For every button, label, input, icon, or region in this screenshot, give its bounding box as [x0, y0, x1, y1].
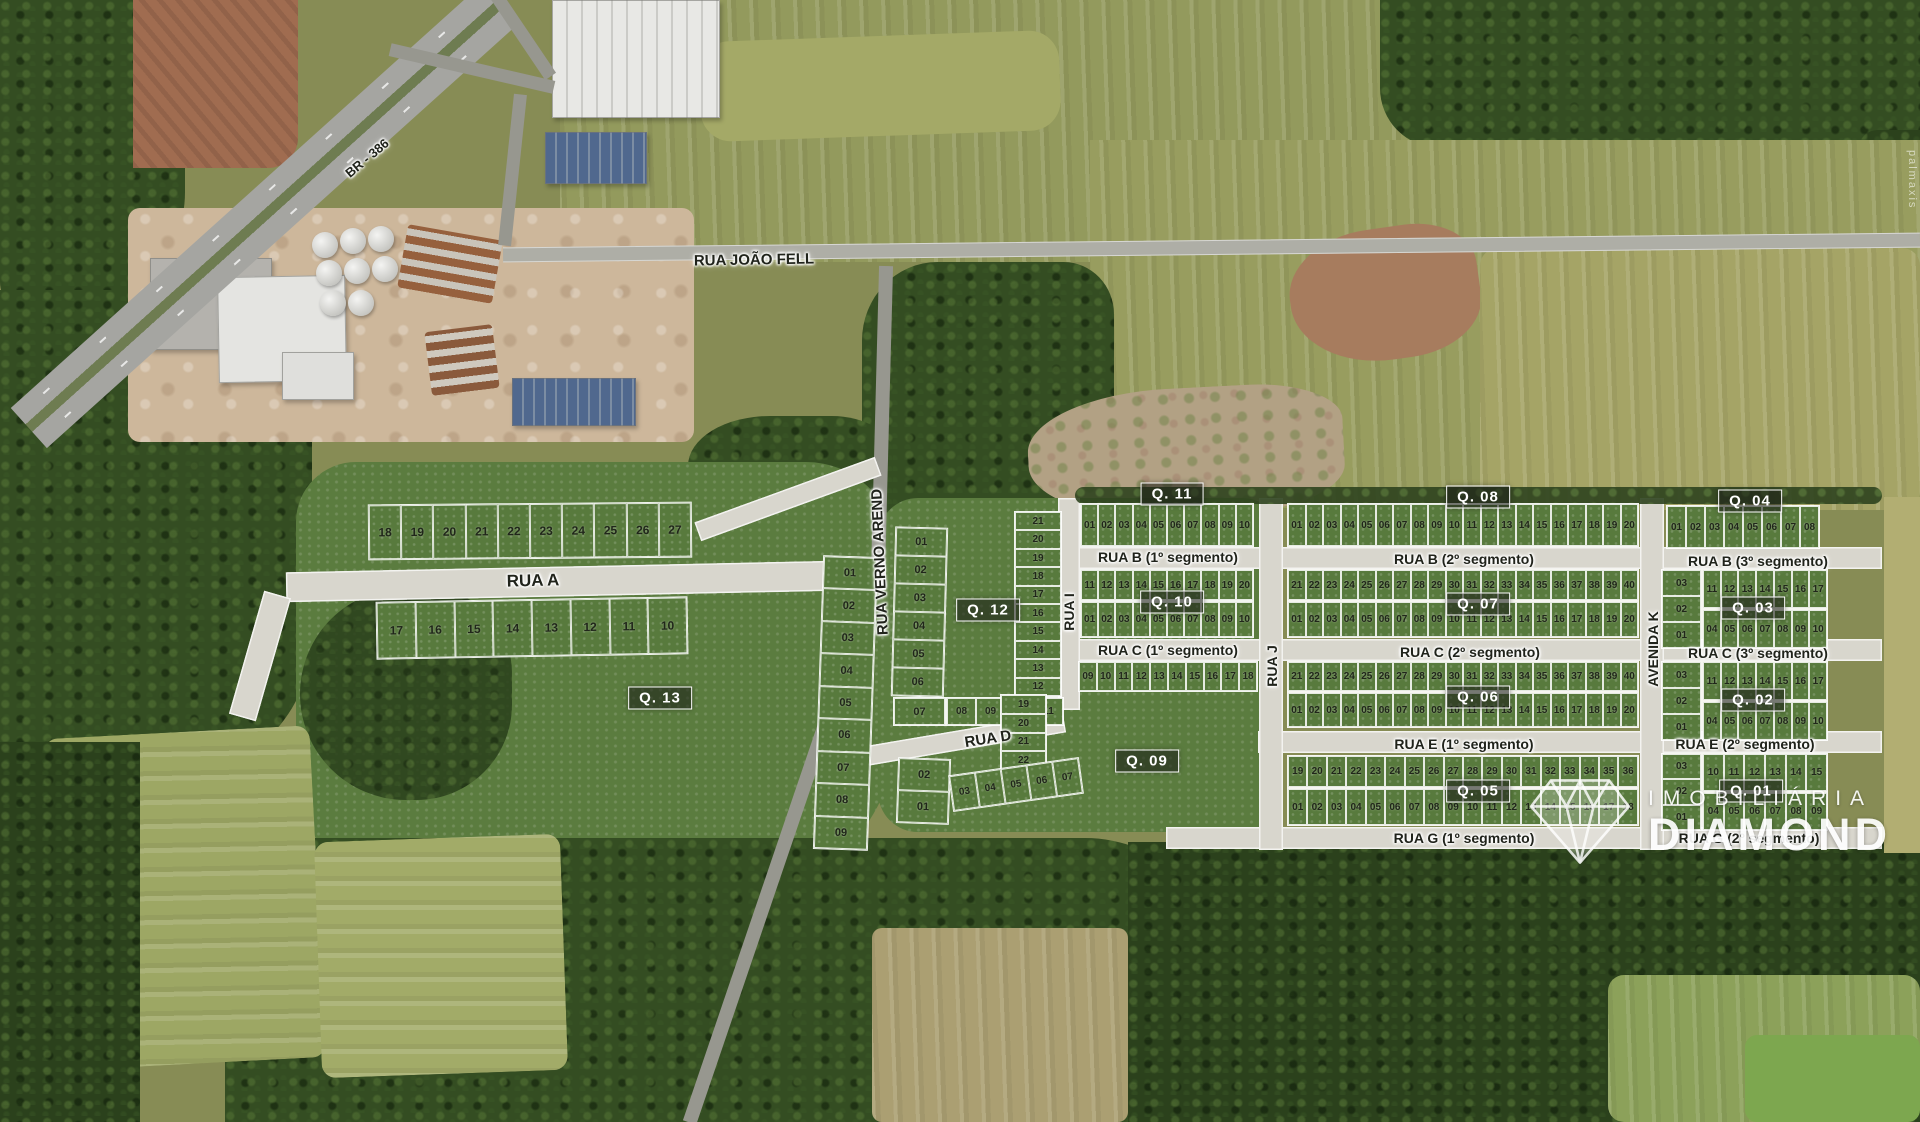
lot-q11-row-09[interactable]: 09: [1219, 504, 1236, 546]
lot-q05-top-22[interactable]: 22: [1346, 756, 1365, 787]
lot-number: 01: [1291, 705, 1302, 716]
lot-q12-east-15[interactable]: 15: [1015, 622, 1061, 640]
lot-number: 15: [1189, 671, 1200, 682]
lot-q12-west-01[interactable]: 01: [895, 527, 947, 556]
lot-q07-bot-09[interactable]: 09: [1428, 602, 1446, 637]
lot-q13-east-09[interactable]: 09: [814, 816, 868, 850]
lot-q07-bot-15[interactable]: 15: [1533, 602, 1551, 637]
lot-q13-mid-11[interactable]: 11: [609, 598, 649, 655]
lot-q06-top-38[interactable]: 38: [1586, 662, 1604, 691]
lot-q05-top-24[interactable]: 24: [1385, 756, 1404, 787]
lot-q10-top-19[interactable]: 19: [1219, 570, 1236, 600]
lot-number: 06: [1035, 775, 1048, 787]
lot-q04-row-02[interactable]: 02: [1686, 506, 1705, 548]
lot-q06-top-27[interactable]: 27: [1393, 662, 1411, 691]
lot-q07-bot-14[interactable]: 14: [1516, 602, 1534, 637]
lot-q06-top-36[interactable]: 36: [1551, 662, 1569, 691]
lot-q07-top-26[interactable]: 26: [1376, 570, 1394, 600]
lot-q06-top-40[interactable]: 40: [1621, 662, 1639, 691]
lot-q13-mid-15[interactable]: 15: [454, 601, 494, 658]
lot-q06-top-22[interactable]: 22: [1306, 662, 1324, 691]
lot-number: 16: [1032, 608, 1043, 619]
lot-q13-east-07[interactable]: 07: [816, 751, 870, 785]
lot-number: 20: [1018, 718, 1029, 729]
terrain-field-red-top-left: [133, 0, 298, 168]
lot-q05-bot-03[interactable]: 03: [1327, 789, 1346, 825]
quadra-label-q13[interactable]: Q. 13: [628, 687, 692, 710]
lot-q13-mid-14[interactable]: 14: [493, 600, 533, 657]
lot-q06-bot-04[interactable]: 04: [1341, 693, 1359, 727]
lot-number: 19: [1606, 520, 1617, 531]
lot-q07-top-22[interactable]: 22: [1306, 570, 1324, 600]
lot-q05-bot-08[interactable]: 08: [1424, 789, 1443, 825]
street-label-rua-g-1: RUA G (1º segmento): [1394, 830, 1535, 846]
lot-q06-top-21[interactable]: 21: [1288, 662, 1306, 691]
lot-q09-top-14[interactable]: 14: [1168, 662, 1186, 691]
lot-q07-top-36[interactable]: 36: [1551, 570, 1569, 600]
lot-number: 12: [1136, 671, 1147, 682]
lot-q13-east-01[interactable]: 01: [823, 556, 877, 590]
lot-number: 08: [1777, 716, 1788, 727]
lot-q06-top-28[interactable]: 28: [1411, 662, 1429, 691]
lot-q07-bot-04[interactable]: 04: [1341, 602, 1359, 637]
lot-q07-bot-08[interactable]: 08: [1411, 602, 1429, 637]
lot-q13-mid-17[interactable]: 17: [377, 602, 417, 659]
lot-q06-bot-06[interactable]: 06: [1376, 693, 1394, 727]
lot-q03-bot-09[interactable]: 09: [1792, 610, 1810, 648]
lot-q07-top-38[interactable]: 38: [1586, 570, 1604, 600]
lot-q10-top-13[interactable]: 13: [1115, 570, 1132, 600]
lot-number: 28: [1414, 580, 1425, 591]
lot-q02-top-17[interactable]: 17: [1809, 662, 1827, 700]
lot-q09-top-17[interactable]: 17: [1221, 662, 1239, 691]
lot-q08-row-12[interactable]: 12: [1481, 504, 1499, 546]
lot-q10-bot-08[interactable]: 08: [1201, 602, 1218, 637]
lot-q06-bot-03[interactable]: 03: [1323, 693, 1341, 727]
lot-q11-row-06[interactable]: 06: [1167, 504, 1184, 546]
lot-q04-row-08[interactable]: 08: [1800, 506, 1819, 548]
quadra-label-q03[interactable]: Q. 03: [1721, 597, 1785, 620]
lot-number: 12: [1101, 580, 1112, 591]
lot-number: 10: [1813, 624, 1824, 635]
lot-q12-east-21[interactable]: 21: [1015, 512, 1061, 530]
lot-q08-row-11[interactable]: 11: [1463, 504, 1481, 546]
lot-q12-east-18[interactable]: 18: [1015, 567, 1061, 585]
lot-q05-top-21[interactable]: 21: [1327, 756, 1346, 787]
lot-q06-bot-05[interactable]: 05: [1358, 693, 1376, 727]
lot-q10-bot-03[interactable]: 03: [1115, 602, 1132, 637]
lot-q07-top-34[interactable]: 34: [1516, 570, 1534, 600]
lot-block-q09-west: 0201: [896, 757, 951, 825]
lot-q05-bot-02[interactable]: 02: [1307, 789, 1326, 825]
lot-q12-east-14[interactable]: 14: [1015, 641, 1061, 659]
street-label-rua-b-2: RUA B (2º segmento): [1394, 551, 1534, 567]
lot-number: 07: [1759, 716, 1770, 727]
lot-number: 18: [1589, 614, 1600, 625]
lot-q13-top-21[interactable]: 21: [465, 504, 498, 558]
lot-q08-row-07[interactable]: 07: [1393, 504, 1411, 546]
lot-q03-top-16[interactable]: 16: [1792, 570, 1810, 608]
lot-q13-east-03[interactable]: 03: [821, 621, 875, 655]
quadra-label-q09[interactable]: Q. 09: [1115, 750, 1179, 773]
lot-q08-row-06[interactable]: 06: [1376, 504, 1394, 546]
lot-number: 05: [1361, 520, 1372, 531]
lot-q10-top-18[interactable]: 18: [1201, 570, 1218, 600]
lot-q05-top-20[interactable]: 20: [1307, 756, 1326, 787]
lot-q08-row-18[interactable]: 18: [1586, 504, 1604, 546]
lot-number: 19: [1606, 705, 1617, 716]
lot-q06-top-25[interactable]: 25: [1358, 662, 1376, 691]
lot-q11-row-04[interactable]: 04: [1133, 504, 1150, 546]
lot-q05-top-19[interactable]: 19: [1288, 756, 1307, 787]
lot-q06-bot-15[interactable]: 15: [1533, 693, 1551, 727]
lot-q06-top-34[interactable]: 34: [1516, 662, 1534, 691]
lot-q05-top-23[interactable]: 23: [1366, 756, 1385, 787]
lot-q13-east-04[interactable]: 04: [820, 653, 874, 687]
lot-q09-south-07[interactable]: 07: [1052, 758, 1083, 796]
lot-q11-row-05[interactable]: 05: [1150, 504, 1167, 546]
lot-q06-bot-07[interactable]: 07: [1393, 693, 1411, 727]
lot-q06-bot-02[interactable]: 02: [1306, 693, 1324, 727]
lot-q02-left-03[interactable]: 03: [1662, 662, 1701, 688]
lot-number: 02: [1101, 614, 1112, 625]
lot-number: 09: [1795, 716, 1806, 727]
lot-q08-row-19[interactable]: 19: [1603, 504, 1621, 546]
lot-q13-top-25[interactable]: 25: [594, 503, 627, 557]
lot-number: 37: [1571, 580, 1582, 591]
lot-number: 16: [1207, 671, 1218, 682]
lot-q13-mid-13[interactable]: 13: [532, 599, 572, 656]
lot-number: 25: [1361, 671, 1372, 682]
lot-q08-row-02[interactable]: 02: [1306, 504, 1324, 546]
lot-q03-bot-10[interactable]: 10: [1809, 610, 1827, 648]
lot-number: 16: [1795, 584, 1806, 595]
lot-q02-bot-10[interactable]: 10: [1809, 702, 1827, 740]
lot-number: 20: [1239, 580, 1250, 591]
street-label-rua-e-1: RUA E (1º segmento): [1394, 736, 1533, 752]
lot-q10-bot-01[interactable]: 01: [1081, 602, 1098, 637]
lot-q06-bot-16[interactable]: 16: [1551, 693, 1569, 727]
lot-q10-bot-02[interactable]: 02: [1098, 602, 1115, 637]
lot-number: 08: [836, 794, 849, 806]
lot-q07-bot-06[interactable]: 06: [1376, 602, 1394, 637]
lot-q05-bot-01[interactable]: 01: [1288, 789, 1307, 825]
lot-q10-top-20[interactable]: 20: [1236, 570, 1253, 600]
quadra-label-q05[interactable]: Q. 05: [1446, 780, 1510, 803]
lot-q05-bot-06[interactable]: 06: [1385, 789, 1404, 825]
lot-q06-bot-20[interactable]: 20: [1621, 693, 1639, 727]
lot-number: 16: [1554, 705, 1565, 716]
lot-q09-top-16[interactable]: 16: [1204, 662, 1222, 691]
lot-q05-bot-07[interactable]: 07: [1405, 789, 1424, 825]
lot-number: 09: [1448, 802, 1459, 813]
lot-q07-top-40[interactable]: 40: [1621, 570, 1639, 600]
lot-q08-row-03[interactable]: 03: [1323, 504, 1341, 546]
lot-q07-bot-17[interactable]: 17: [1568, 602, 1586, 637]
lot-q03-left-02[interactable]: 02: [1662, 596, 1701, 622]
lot-number: 18: [1243, 671, 1254, 682]
lot-q12-west-04[interactable]: 04: [893, 611, 945, 640]
lot-q05-bot-04[interactable]: 04: [1346, 789, 1365, 825]
lot-number: 10: [1467, 802, 1478, 813]
lot-q07-top-27[interactable]: 27: [1393, 570, 1411, 600]
lot-q06-top-23[interactable]: 23: [1323, 662, 1341, 691]
lot-q02-top-16[interactable]: 16: [1792, 662, 1810, 700]
lot-q06-top-26[interactable]: 26: [1376, 662, 1394, 691]
lot-q10-bot-09[interactable]: 09: [1219, 602, 1236, 637]
lot-q06-bot-17[interactable]: 17: [1568, 693, 1586, 727]
lot-number: 20: [1312, 766, 1323, 777]
lot-number: 07: [1759, 624, 1770, 635]
lot-number: 04: [1344, 614, 1355, 625]
lot-number: 19: [1222, 580, 1233, 591]
lot-q08-row-05[interactable]: 05: [1358, 504, 1376, 546]
lot-number: 11: [1707, 584, 1718, 595]
lot-q06-top-37[interactable]: 37: [1568, 662, 1586, 691]
lot-number: 31: [1466, 671, 1477, 682]
lot-q07-bot-07[interactable]: 07: [1393, 602, 1411, 637]
lot-number: 15: [1153, 580, 1164, 591]
lot-q13-mid-10[interactable]: 10: [648, 597, 688, 654]
lot-q03-top-11[interactable]: 11: [1703, 570, 1721, 608]
lot-number: 08: [1414, 705, 1425, 716]
lot-q12-east-16[interactable]: 16: [1015, 604, 1061, 622]
lot-number: 20: [443, 525, 456, 539]
lot-number: 03: [1118, 614, 1129, 625]
lot-q08-row-20[interactable]: 20: [1621, 504, 1639, 546]
lot-block-q12-east: 21201918171615141312: [1014, 511, 1062, 697]
lot-q08-row-04[interactable]: 04: [1341, 504, 1359, 546]
lot-number: 33: [1501, 580, 1512, 591]
lot-q12-west-06[interactable]: 06: [892, 667, 944, 696]
lot-number: 19: [1018, 699, 1029, 710]
quadra-label-q04[interactable]: Q. 04: [1718, 490, 1782, 513]
lot-q12-east-20[interactable]: 20: [1015, 530, 1061, 548]
lot-number: 11: [1707, 676, 1718, 687]
lot-number: 16: [1554, 520, 1565, 531]
lot-q08-row-13[interactable]: 13: [1498, 504, 1516, 546]
lot-q03-left-03[interactable]: 03: [1662, 570, 1701, 596]
quadra-label-q07[interactable]: Q. 07: [1446, 593, 1510, 616]
lot-q07-bot-20[interactable]: 20: [1621, 602, 1639, 637]
lot-number: 27: [1396, 671, 1407, 682]
lot-number: 23: [539, 524, 552, 538]
silo: [320, 290, 346, 316]
lot-q04-row-01[interactable]: 01: [1667, 506, 1686, 548]
lot-q08-row-01[interactable]: 01: [1288, 504, 1306, 546]
lot-number: 19: [411, 525, 424, 539]
lot-q02-bot-09[interactable]: 09: [1792, 702, 1810, 740]
lot-q11-row-03[interactable]: 03: [1115, 504, 1132, 546]
lot-q06-top-29[interactable]: 29: [1428, 662, 1446, 691]
lot-q09-top-15[interactable]: 15: [1186, 662, 1204, 691]
lot-number: 13: [1118, 580, 1129, 591]
lot-q07-bot-01[interactable]: 01: [1288, 602, 1306, 637]
lot-number: 20: [1624, 520, 1635, 531]
lot-q07-top-28[interactable]: 28: [1411, 570, 1429, 600]
lot-q06-bot-08[interactable]: 08: [1411, 693, 1429, 727]
lot-q07-top-29[interactable]: 29: [1428, 570, 1446, 600]
lot-q12-south-08[interactable]: 08: [947, 698, 976, 725]
lot-q13-mid-12[interactable]: 12: [570, 599, 610, 656]
lot-q09-west-02[interactable]: 02: [898, 758, 950, 792]
lot-number: 38: [1589, 671, 1600, 682]
lot-q13-east-08[interactable]: 08: [815, 783, 869, 817]
lot-q11-row-10[interactable]: 10: [1236, 504, 1253, 546]
lot-q11-row-07[interactable]: 07: [1184, 504, 1201, 546]
lot-number: 15: [1536, 705, 1547, 716]
lot-q10-top-12[interactable]: 12: [1098, 570, 1115, 600]
lot-q08-row-15[interactable]: 15: [1533, 504, 1551, 546]
lot-q13-top-22[interactable]: 22: [498, 504, 531, 558]
lot-q07-top-23[interactable]: 23: [1323, 570, 1341, 600]
quadra-label-q08[interactable]: Q. 08: [1446, 486, 1510, 509]
lot-q13-east-02[interactable]: 02: [822, 589, 876, 623]
lot-q11-row-02[interactable]: 02: [1098, 504, 1115, 546]
lot-q08-row-08[interactable]: 08: [1411, 504, 1429, 546]
lot-q05-top-25[interactable]: 25: [1405, 756, 1424, 787]
lot-number: 09: [835, 826, 848, 838]
lot-block-q13-east: 010203040506070809: [813, 555, 878, 851]
lot-number: 14: [1519, 520, 1530, 531]
lot-number: 06: [911, 676, 924, 688]
quadra-label-q11[interactable]: Q. 11: [1141, 483, 1204, 506]
lot-q13-east-05[interactable]: 05: [818, 686, 872, 720]
lot-q03-top-17[interactable]: 17: [1809, 570, 1827, 608]
lot-q02-top-11[interactable]: 11: [1703, 662, 1721, 700]
lot-q07-bot-05[interactable]: 05: [1358, 602, 1376, 637]
lot-q09-top-18[interactable]: 18: [1239, 662, 1257, 691]
lot-q08-row-16[interactable]: 16: [1551, 504, 1569, 546]
lot-q07-top-35[interactable]: 35: [1533, 570, 1551, 600]
street-label-rua-c-3: RUA C (3º segmento): [1688, 645, 1828, 661]
quadra-label-q12[interactable]: Q. 12: [956, 599, 1020, 622]
lot-q04-row-07[interactable]: 07: [1781, 506, 1800, 548]
lot-q07-bot-16[interactable]: 16: [1551, 602, 1569, 637]
lot-q02-left-02[interactable]: 02: [1662, 688, 1701, 714]
lot-q02-bot-04[interactable]: 04: [1703, 702, 1721, 740]
lot-q13-east-06[interactable]: 06: [817, 718, 871, 752]
lot-q12-east-13[interactable]: 13: [1015, 659, 1061, 677]
lot-q13-top-19[interactable]: 19: [401, 505, 434, 559]
lot-q09-top-13[interactable]: 13: [1150, 662, 1168, 691]
lot-number: 09: [1082, 671, 1093, 682]
lot-q06-bot-18[interactable]: 18: [1586, 693, 1604, 727]
lot-q07-bot-02[interactable]: 02: [1306, 602, 1324, 637]
quadra-label-q10[interactable]: Q. 10: [1140, 591, 1204, 614]
lot-number: 25: [1409, 766, 1420, 777]
lot-number: 03: [841, 632, 854, 644]
lot-number: 12: [1484, 614, 1495, 625]
lot-number: 23: [1326, 671, 1337, 682]
lot-q07-bot-19[interactable]: 19: [1603, 602, 1621, 637]
lot-q07-bot-03[interactable]: 03: [1323, 602, 1341, 637]
lot-q07-bot-18[interactable]: 18: [1586, 602, 1604, 637]
lot-q08-row-14[interactable]: 14: [1516, 504, 1534, 546]
lot-number: 37: [1571, 671, 1582, 682]
lot-q09-top-10[interactable]: 10: [1097, 662, 1115, 691]
lot-q09-top-09[interactable]: 09: [1079, 662, 1097, 691]
lot-q08-row-10[interactable]: 10: [1446, 504, 1464, 546]
lot-q08-row-17[interactable]: 17: [1568, 504, 1586, 546]
lot-number: 03: [1326, 614, 1337, 625]
lot-q07-top-39[interactable]: 39: [1603, 570, 1621, 600]
lot-q12-west-03[interactable]: 03: [894, 583, 946, 612]
lot-number: 32: [1484, 580, 1495, 591]
lot-q12-east-19[interactable]: 19: [1015, 549, 1061, 567]
lot-number: 15: [1032, 626, 1043, 637]
lot-number: 14: [1519, 705, 1530, 716]
lot-number: 13: [1501, 614, 1512, 625]
lot-q06-bot-14[interactable]: 14: [1516, 693, 1534, 727]
lot-number: 07: [1187, 614, 1198, 625]
lot-q09-top-11[interactable]: 11: [1115, 662, 1133, 691]
lot-number: 12: [583, 620, 597, 634]
lot-q07-top-24[interactable]: 24: [1341, 570, 1359, 600]
lot-q13-top-26[interactable]: 26: [626, 503, 659, 557]
lot-q12-west-02[interactable]: 02: [895, 555, 947, 584]
lot-q13-top-24[interactable]: 24: [562, 503, 595, 557]
lot-q12-west-05[interactable]: 05: [893, 639, 945, 668]
lot-q06-bot-09[interactable]: 09: [1428, 693, 1446, 727]
lot-q10-bot-10[interactable]: 10: [1236, 602, 1253, 637]
diamond-gem-icon: [1528, 772, 1632, 873]
lot-q13-top-27[interactable]: 27: [659, 503, 692, 557]
lot-q12-corner-07[interactable]: 07: [894, 698, 945, 725]
lot-number: 24: [1389, 766, 1400, 777]
lot-q06-top-24[interactable]: 24: [1341, 662, 1359, 691]
lot-q03-bot-04[interactable]: 04: [1703, 610, 1721, 648]
lot-number: 22: [507, 524, 520, 538]
lot-q13-top-23[interactable]: 23: [530, 504, 563, 558]
lot-number: 13: [1742, 676, 1753, 687]
lot-number: 29: [1487, 766, 1498, 777]
lot-number: 24: [1344, 580, 1355, 591]
lot-q06-top-35[interactable]: 35: [1533, 662, 1551, 691]
lot-q06-bot-01[interactable]: 01: [1288, 693, 1306, 727]
lot-q06-top-39[interactable]: 39: [1603, 662, 1621, 691]
lot-q12-east-17[interactable]: 17: [1015, 586, 1061, 604]
lot-q07-top-21[interactable]: 21: [1288, 570, 1306, 600]
lot-q09-east-19[interactable]: 19: [1001, 695, 1046, 714]
lot-q07-top-37[interactable]: 37: [1568, 570, 1586, 600]
lot-q07-top-25[interactable]: 25: [1358, 570, 1376, 600]
lot-q13-mid-16[interactable]: 16: [415, 601, 455, 658]
quadra-label-q06[interactable]: Q. 06: [1446, 686, 1510, 709]
lot-number: 07: [1409, 802, 1420, 813]
lot-q11-row-01[interactable]: 01: [1081, 504, 1098, 546]
lot-q06-bot-19[interactable]: 19: [1603, 693, 1621, 727]
lot-q05-bot-05[interactable]: 05: [1366, 789, 1385, 825]
lot-number: 17: [1571, 705, 1582, 716]
lot-q08-row-09[interactable]: 09: [1428, 504, 1446, 546]
lot-number: 04: [1344, 705, 1355, 716]
quadra-label-q02[interactable]: Q. 02: [1721, 689, 1785, 712]
lot-block-q12-corner: 07: [893, 697, 946, 726]
lot-q13-top-20[interactable]: 20: [433, 505, 466, 559]
lot-q11-row-08[interactable]: 08: [1201, 504, 1218, 546]
warehouse-roof-top: [552, 0, 720, 118]
lot-q10-top-11[interactable]: 11: [1081, 570, 1098, 600]
lot-q05-top-26[interactable]: 26: [1424, 756, 1443, 787]
lot-number: 11: [1466, 614, 1477, 625]
lot-q09-west-01[interactable]: 01: [897, 790, 949, 824]
lot-number: 26: [1428, 766, 1439, 777]
lot-number: 06: [1389, 802, 1400, 813]
lot-number: 11: [1084, 580, 1095, 591]
lot-q13-top-18[interactable]: 18: [369, 505, 402, 559]
lot-q09-top-12[interactable]: 12: [1132, 662, 1150, 691]
